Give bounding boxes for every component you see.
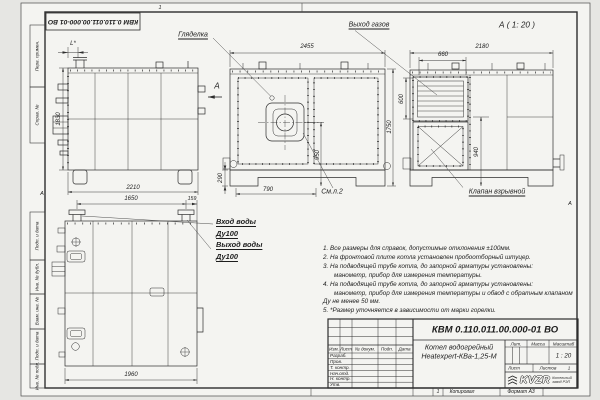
row-t-kontr: Т. контр. [330,365,350,370]
margin-label-perv-primen: Перв. примен. [35,41,40,72]
row-nach-otd: Нач.отд. [330,371,349,376]
col-izm: Изм. [329,347,339,352]
lit-header: Лит. [511,341,522,346]
dim-side-height: 1830 [56,112,62,125]
filing-stamp: КВМ 0.110.011.00.000-01 ВО [46,13,140,30]
note-line: 4. На подводящей трубе котла, до запорно… [323,281,579,290]
dim-top-edge-offset: 159 [188,196,197,202]
scale-value: 1 : 20 [556,352,571,359]
dim-front-burner-axis: 950 [315,150,321,160]
product-name-line2: Heatexpert-КВа-1,25-М [421,352,496,361]
product-name-line1: Котел водогрейный [425,343,493,352]
sheet-label: Лист [508,366,520,371]
organization-name: Котельный завод РЭП [552,376,572,384]
col-data: Дата [398,347,410,352]
water-inlet-dn-label: Ду100 [216,229,238,238]
dim-side-width: 2210 [126,185,139,191]
explosion-valve-label: Клапан взрывной [469,189,526,196]
note-line: 5. *Размер уточняется в зависимости от м… [323,307,579,316]
organization-name-line2: завод РЭП [552,380,572,384]
zone-marker-left: А [40,191,44,197]
organization-logo: KVZR Котельный завод РЭП [507,374,577,387]
dim-front-height: 1750 [387,120,393,133]
col-dokum: № докум. [355,347,375,352]
dim-section-outlet-height: 600 [399,94,405,104]
technical-notes: 1. Все размеры для справок, допустимые о… [323,245,579,316]
dim-front-left-offset: 790 [263,187,273,193]
margin-label-sprav-no: Справ. № [35,105,40,126]
margin-label-inv-dubl: Инв. № дубл. [35,263,40,291]
sheet-frame [21,3,590,396]
water-inlet-label: Вход воды [216,217,256,226]
peephole-label: Гляделка [178,32,208,39]
note-line: Ду не менее 50 мм. [323,298,579,307]
gas-outlet-label: Выход газов [349,22,390,29]
water-outlet-dn-label: Ду100 [216,252,238,261]
dim-side-burner-offset: L* [70,41,76,47]
section-view-title: А ( 1: 20 ) [499,21,535,30]
zone-marker-right: А [568,201,572,207]
drawing-canvas [0,0,600,400]
logo-zigzag-icon [507,375,518,386]
dim-front-width: 2455 [300,44,313,50]
water-outlet-label: Выход воды [216,240,262,249]
dim-section-rear-height: 940 [474,147,480,157]
dim-top-width: 1960 [124,372,137,378]
note-line: 2. На фронтовой плите котла установлен п… [323,254,579,263]
filing-stamp-text: КВМ 0.110.011.00.000-01 ВО [48,18,138,25]
drawing-sheet: КВМ 0.110.011.00.000-01 ВО Перв. примен.… [0,0,600,400]
margin-label-podp-data-1: Подп. и дата [35,222,40,251]
title-block-designation: КВМ 0.110.011.00.000-01 ВО [432,324,558,335]
footer-format: Формат А3 [507,389,534,395]
mass-header: Масса [531,341,545,346]
row-prov: Пров. [330,359,342,364]
logo-text: KVZR [520,375,550,386]
dim-top-nozzle-pitch: 1650 [124,196,137,202]
scale-header: Масштаб [553,341,574,346]
row-n-kontr: Н. контр. [330,376,351,381]
col-list: Лист [340,347,352,352]
note-line: манометр, прибор для измерения температу… [323,290,579,299]
section-arrow-label: А [214,82,219,91]
sheets-label: Листов [540,366,557,371]
note-line: манометр, прибор для измерения температу… [323,272,579,281]
note-line: 1. Все размеры для справок, допустимые о… [323,245,579,254]
dim-front-base-height: 290 [218,173,224,183]
margin-label-inv-podl: Инв. № подл. [35,362,40,391]
margin-label-podp-data-2: Подп. и дата [35,332,40,361]
sheets-value: 1 [568,366,571,371]
margin-label-vzam-inv: Взам. инв. № [35,297,40,325]
dim-section-width: 2180 [475,44,488,50]
dim-section-outlet-width: 660 [438,52,448,58]
row-utv: Утв. [330,382,340,387]
footer-copied: Копировал [450,389,475,395]
row-razrab: Разраб. [330,353,347,358]
see-sheet-label: См.л.2 [321,189,343,196]
zone-marker-top: 1 [158,5,161,11]
col-podp: Подп. [381,347,393,352]
footer-zone: 1 [437,389,440,395]
note-line: 3. На подводящей трубе котла, до запорно… [323,263,579,272]
